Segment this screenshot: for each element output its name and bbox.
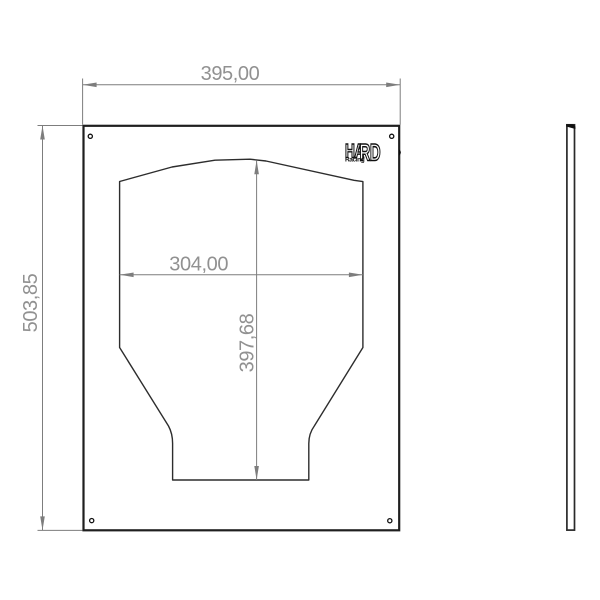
svg-text:Racing: Racing xyxy=(345,157,365,164)
svg-text:304,00: 304,00 xyxy=(169,253,228,275)
svg-text:395,00: 395,00 xyxy=(201,63,260,85)
svg-text:503,85: 503,85 xyxy=(20,273,42,332)
svg-text:397,68: 397,68 xyxy=(236,313,258,372)
